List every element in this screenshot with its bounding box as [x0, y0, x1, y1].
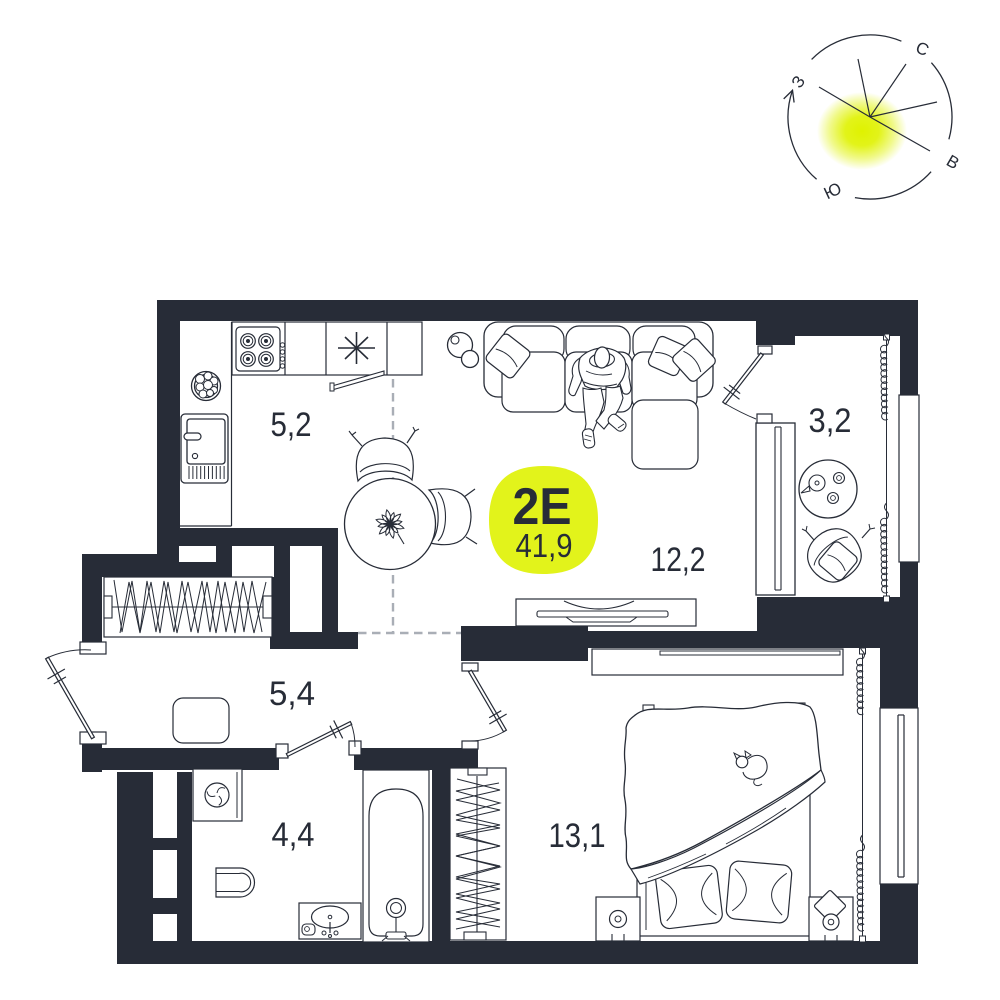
svg-text:5,2: 5,2: [271, 406, 312, 444]
svg-text:13,1: 13,1: [549, 817, 606, 855]
svg-text:12,2: 12,2: [651, 541, 706, 579]
svg-text:5,4: 5,4: [269, 675, 315, 713]
svg-text:41,9: 41,9: [516, 527, 573, 564]
svg-text:3,2: 3,2: [809, 402, 852, 440]
svg-text:4,4: 4,4: [272, 816, 315, 854]
